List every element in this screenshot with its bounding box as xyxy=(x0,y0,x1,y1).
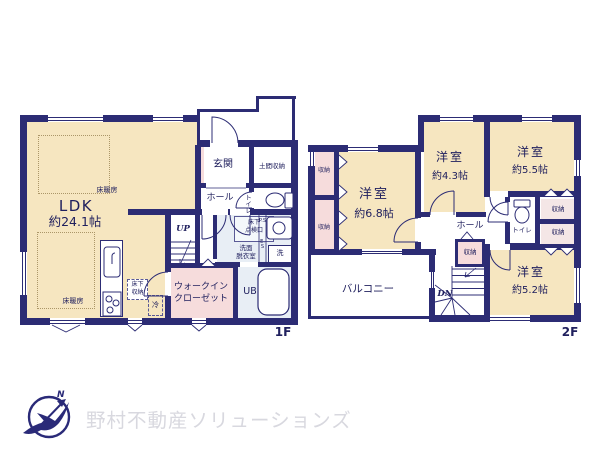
floor-2f-label: 2F xyxy=(558,325,582,341)
door-opening xyxy=(415,218,421,242)
toilet-2f-icon xyxy=(514,200,530,223)
window xyxy=(490,315,530,322)
wall-segment xyxy=(197,109,200,142)
toilet-1f-label: トイレ xyxy=(243,190,251,218)
room-68-size-label: 約6.8帖 xyxy=(334,207,414,221)
compass-icon xyxy=(23,397,69,437)
window xyxy=(192,318,206,325)
room-52-size-label: 約5.2帖 xyxy=(495,284,565,297)
wall-segment xyxy=(308,255,311,318)
compass-north-label: N xyxy=(57,390,65,400)
window xyxy=(20,252,27,295)
ldk-size-label: 約24.1帖 xyxy=(35,214,115,230)
room-52-area xyxy=(489,249,575,316)
room-43-name-label: 洋室 xyxy=(424,150,476,166)
door-opening xyxy=(490,191,508,197)
door-opening xyxy=(490,244,510,250)
door-opening xyxy=(505,202,510,222)
room-43-size-label: 約4.3帖 xyxy=(415,170,485,183)
window xyxy=(574,268,581,303)
hall-2f-label: ホール xyxy=(445,221,495,233)
door-opening xyxy=(240,262,258,267)
room-55-size-label: 約5.5帖 xyxy=(495,164,565,177)
wall-segment xyxy=(537,219,581,224)
window xyxy=(440,115,473,122)
underfloor-access-label: 床下 点検口 xyxy=(236,219,272,235)
wall-segment xyxy=(195,215,200,265)
floor-1f-label: 1F xyxy=(271,325,295,341)
wall-segment xyxy=(128,209,198,215)
room-68-name-label: 洋室 xyxy=(344,187,404,204)
room-43-area xyxy=(424,121,485,213)
doma-storage-label: 土間収納 xyxy=(247,162,297,170)
window xyxy=(308,152,315,166)
door-opening xyxy=(430,212,456,217)
window xyxy=(153,115,183,122)
stairs-1f-area xyxy=(168,215,197,264)
storage-right-2-label: 収納 xyxy=(543,228,573,236)
room-52-name-label: 洋室 xyxy=(505,265,557,281)
wall-segment xyxy=(256,96,296,99)
door-opening xyxy=(202,209,228,215)
underfloor-storage-label: 床下 収納 xyxy=(127,281,148,297)
unit-bath-label: UB xyxy=(236,286,264,298)
floor-plan-document: LDK 約24.1帖 床暖房 床暖房 玄関 土間収納 ホール トイレ 床下 点検… xyxy=(0,0,600,450)
balcony-label: バルコニー xyxy=(333,283,403,297)
window xyxy=(429,272,435,288)
washroom-label: 洗面 脱衣室 xyxy=(226,244,266,261)
window xyxy=(50,318,85,325)
window xyxy=(348,145,378,152)
laundry-label: 洗 xyxy=(272,249,288,258)
company-logo-text: 野村不動産ソリューションズ xyxy=(86,404,352,433)
floor-heating-label-2: 床暖房 xyxy=(53,297,93,306)
storage-left-1-label: 収納 xyxy=(310,167,338,175)
storage-right-1-label: 収納 xyxy=(543,205,573,213)
floor-heating-label-1: 床暖房 xyxy=(87,186,127,195)
stairs-up-label: UP xyxy=(172,224,194,235)
window xyxy=(522,115,552,122)
door-opening xyxy=(210,140,238,147)
wall-segment xyxy=(308,316,433,319)
toilet-1f-icon xyxy=(266,193,293,208)
kitchen-counter xyxy=(100,240,123,317)
storage-hall-label: 収納 xyxy=(455,248,485,256)
wall-segment xyxy=(213,215,217,259)
wall-segment xyxy=(484,115,490,196)
wall-segment xyxy=(292,96,295,142)
storage-left-2-label: 収納 xyxy=(310,224,338,232)
fridge-label: 冷 xyxy=(148,301,163,310)
window xyxy=(128,318,142,325)
wall-segment xyxy=(334,150,339,252)
pipe-space-label: P.S xyxy=(259,219,266,224)
stairs-down-label: DN xyxy=(434,289,456,300)
genkan-label: 玄関 xyxy=(198,158,248,171)
room-55-name-label: 洋室 xyxy=(505,145,557,161)
wall-segment xyxy=(418,115,424,152)
walkin-closet-label: ウォークイン クローゼット xyxy=(166,282,236,305)
toilet-2f-label: トイレ xyxy=(507,226,537,234)
door-opening xyxy=(206,183,246,188)
window xyxy=(48,115,103,122)
window xyxy=(574,160,581,176)
wall-segment xyxy=(197,109,259,112)
window xyxy=(362,249,402,255)
hall-1f-label: ホール xyxy=(195,193,245,205)
